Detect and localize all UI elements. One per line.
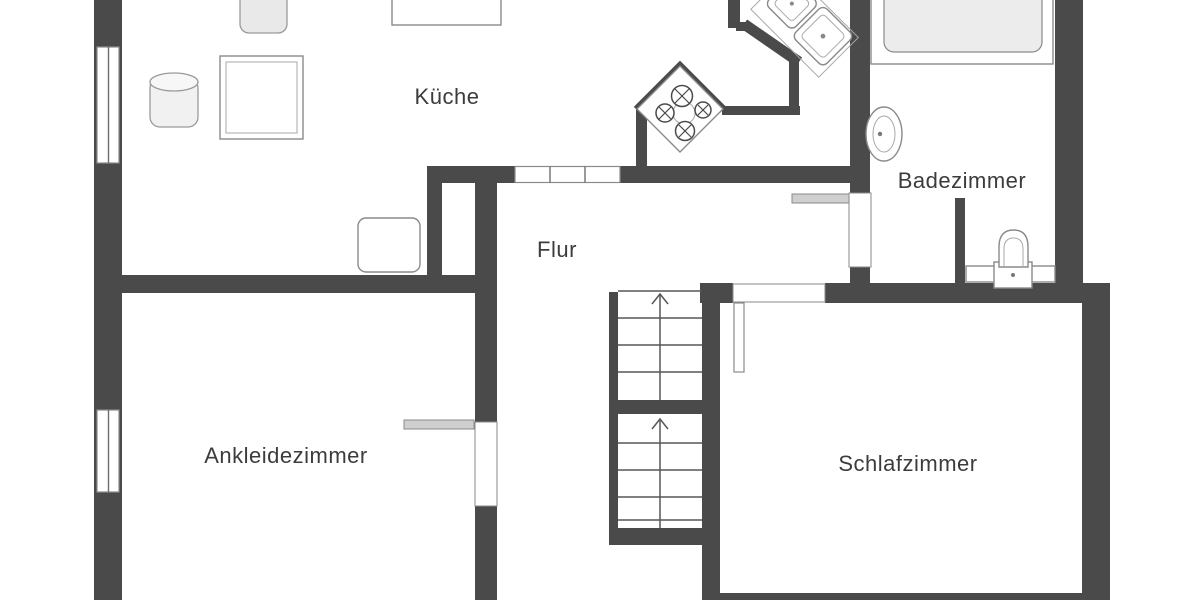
wall-counter-horizontal	[722, 106, 800, 115]
room-ankleidezimmer	[122, 293, 475, 600]
room-flur	[497, 183, 847, 283]
wall-kueche-ankleide	[122, 275, 497, 293]
wall-stair-mid	[609, 400, 702, 414]
wall-ankleide-right-lower	[475, 506, 497, 600]
floorplan-svg: Küche Flur Badezimmer Ankleidezimmer Sch…	[0, 0, 1200, 600]
wall-bad-left-upper	[850, 0, 870, 193]
wall-stair-bottom	[609, 528, 720, 545]
floorplan-canvas: Küche Flur Badezimmer Ankleidezimmer Sch…	[0, 0, 1200, 600]
wall-kueche-flur-right	[620, 166, 870, 183]
wall-shaft-left-bar	[427, 166, 442, 293]
wall-schlaf-bottom	[720, 593, 1082, 600]
outer-wall-bad-right	[1055, 0, 1083, 303]
room-badezimmer	[870, 0, 1055, 283]
wall-stair-right	[702, 285, 720, 600]
flur-top-window	[515, 167, 620, 183]
wall-ankleide-right-upper	[475, 166, 497, 422]
stairs-lower-flight	[618, 419, 702, 528]
wall-stair-left	[609, 292, 618, 545]
wall-schlaf-top-right	[825, 283, 1110, 303]
room-schlafzimmer	[720, 303, 1082, 593]
room-kueche	[122, 0, 722, 165]
outer-wall-schlaf-right	[1082, 283, 1110, 600]
stairs-upper-flight	[618, 291, 702, 400]
kitchen-left-window	[97, 47, 119, 163]
side-table	[358, 218, 420, 272]
ankleidezimmer-left-window	[97, 410, 119, 492]
